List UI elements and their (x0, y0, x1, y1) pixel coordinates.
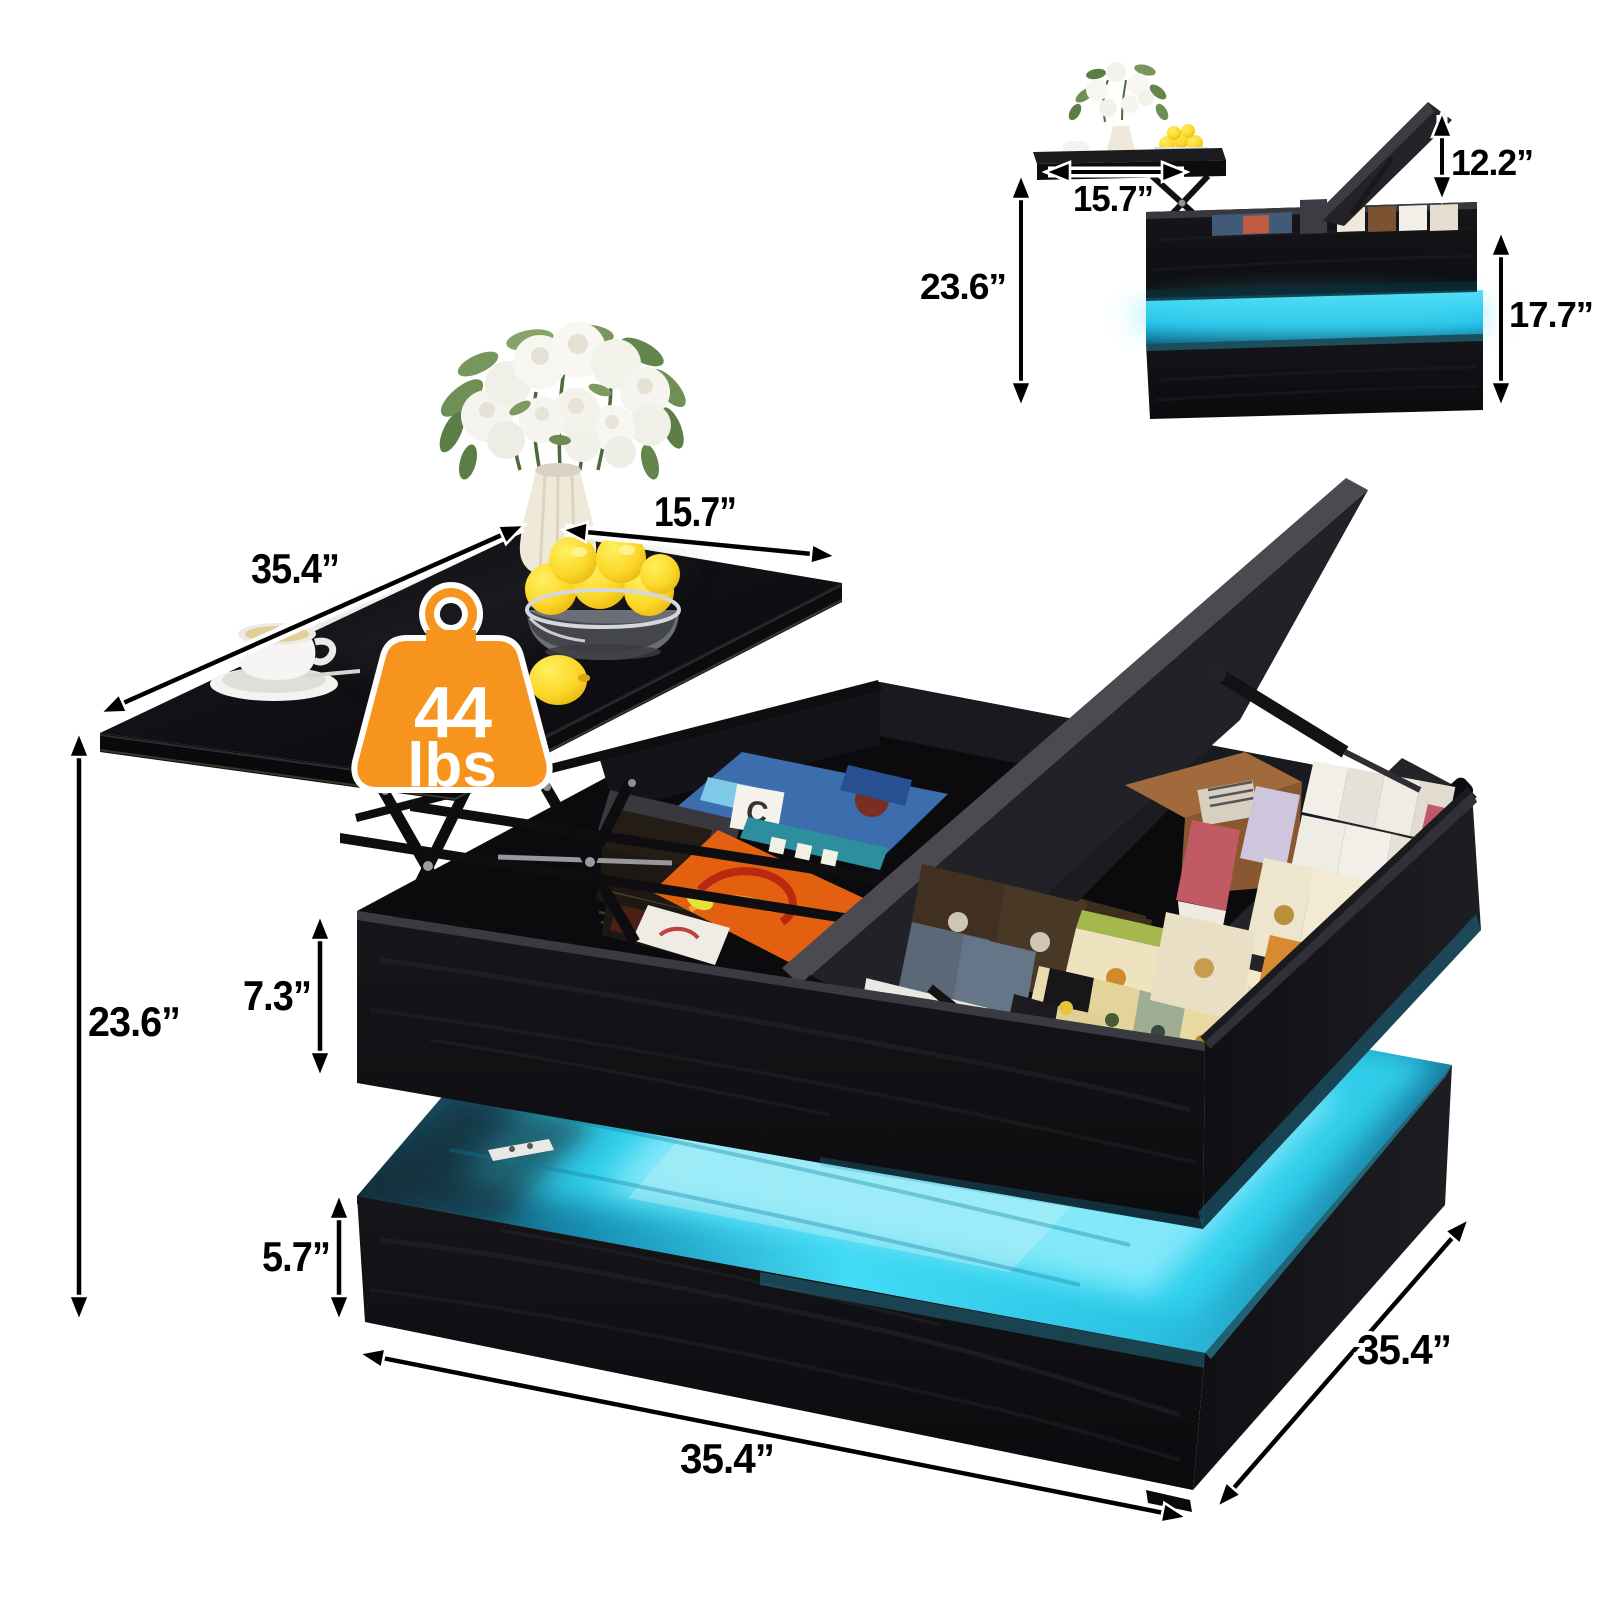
svg-text:12.2”: 12.2” (1451, 142, 1533, 183)
svg-text:35.4”: 35.4” (680, 1435, 774, 1482)
svg-text:7.3”: 7.3” (243, 972, 311, 1019)
svg-text:23.6”: 23.6” (920, 266, 1006, 307)
svg-text:35.4”: 35.4” (251, 545, 339, 592)
svg-text:35.4”: 35.4” (1357, 1326, 1451, 1373)
svg-text:15.7”: 15.7” (654, 488, 736, 535)
svg-text:17.7”: 17.7” (1509, 294, 1593, 335)
svg-text:5.7”: 5.7” (262, 1233, 330, 1280)
svg-text:lbs: lbs (407, 731, 497, 800)
svg-text:23.6”: 23.6” (88, 998, 180, 1045)
svg-text:15.7”: 15.7” (1073, 178, 1153, 219)
